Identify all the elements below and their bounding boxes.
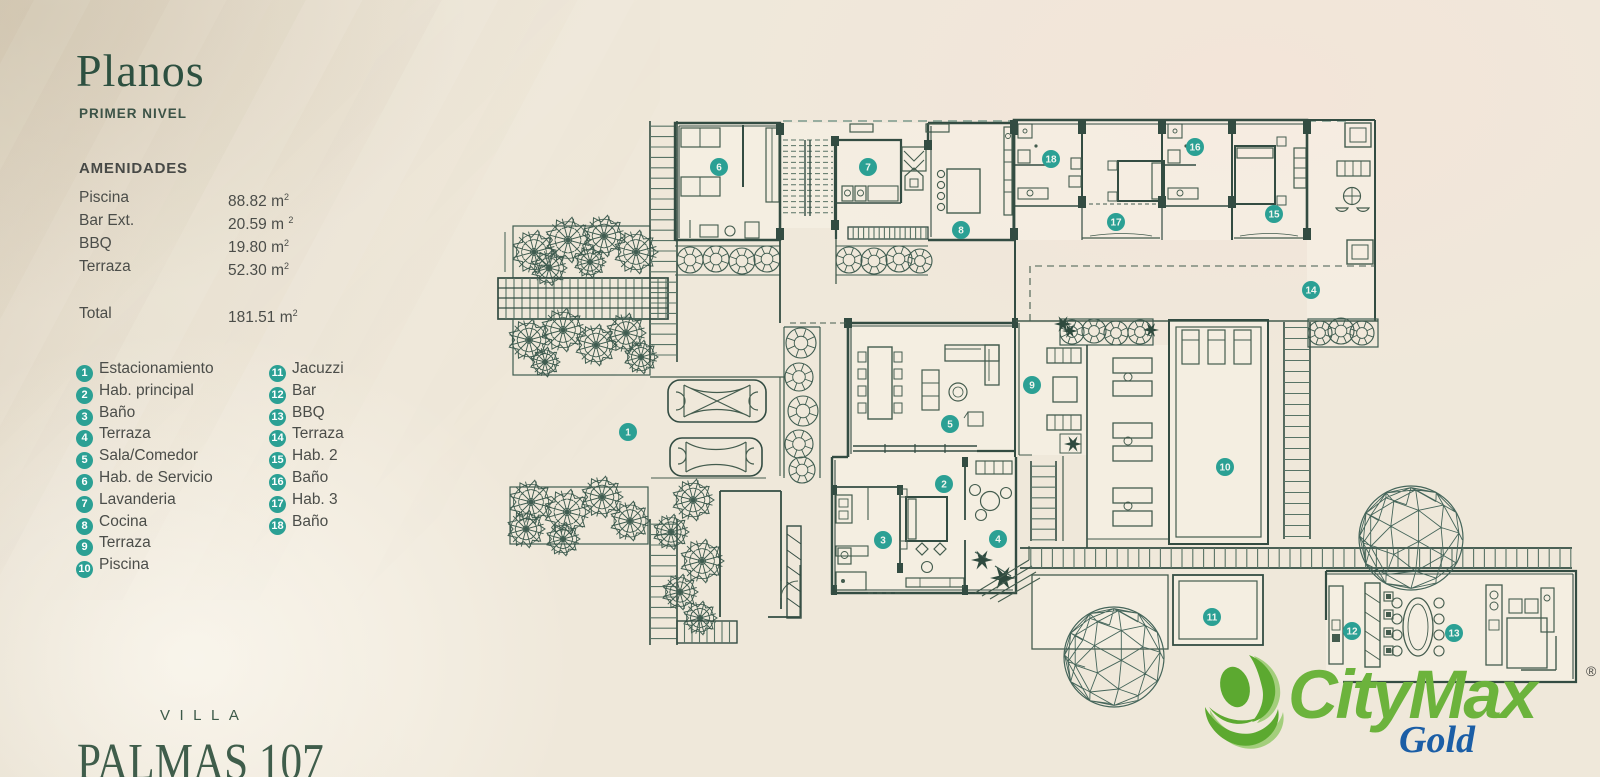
svg-text:5: 5	[947, 420, 953, 431]
svg-text:8: 8	[958, 226, 964, 237]
svg-text:17: 17	[1110, 218, 1122, 229]
svg-text:15: 15	[1268, 210, 1280, 221]
svg-text:16: 16	[1189, 143, 1201, 154]
svg-text:Gold: Gold	[1399, 719, 1476, 761]
svg-text:7: 7	[865, 163, 871, 174]
svg-text:13: 13	[1448, 629, 1460, 640]
svg-text:1: 1	[625, 428, 631, 439]
svg-text:6: 6	[716, 163, 722, 174]
svg-text:18: 18	[1045, 155, 1057, 166]
svg-text:9: 9	[1029, 381, 1035, 392]
svg-text:12: 12	[1346, 627, 1358, 638]
svg-text:11: 11	[1207, 613, 1218, 624]
svg-text:14: 14	[1305, 286, 1317, 297]
svg-text:®: ®	[1586, 663, 1597, 679]
svg-text:4: 4	[995, 535, 1001, 546]
svg-text:2: 2	[941, 480, 947, 491]
svg-text:3: 3	[880, 536, 886, 547]
svg-text:10: 10	[1219, 463, 1231, 474]
